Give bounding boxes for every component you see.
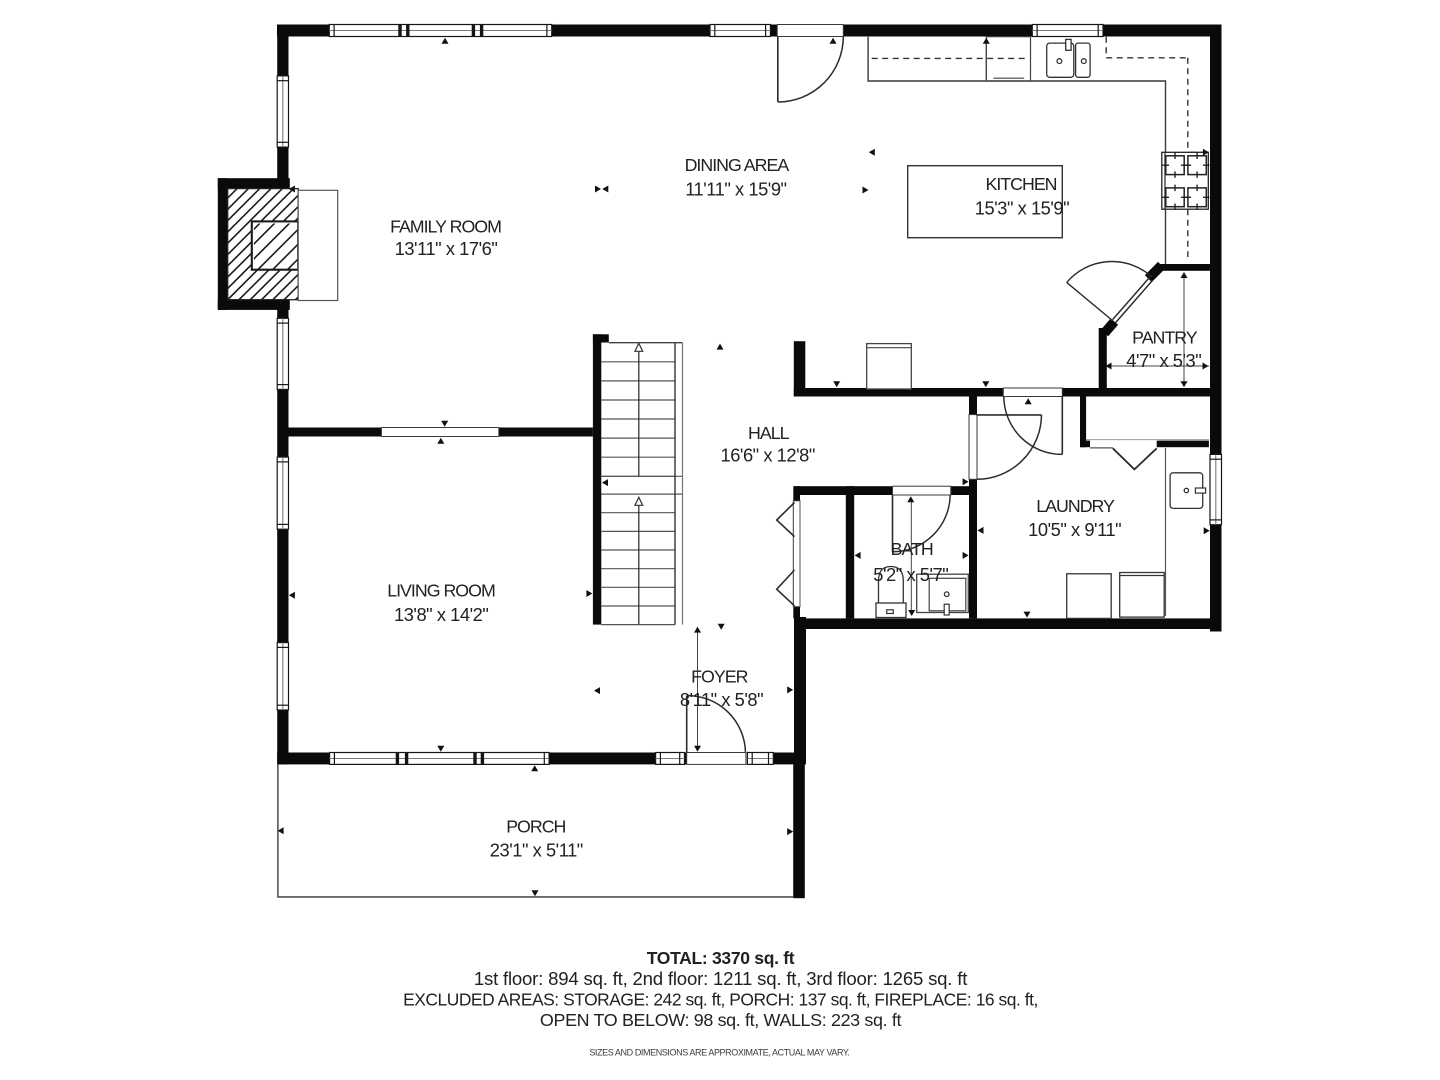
- svg-text:KITCHEN: KITCHEN: [985, 174, 1056, 194]
- svg-text:FOYER: FOYER: [691, 667, 748, 687]
- svg-text:13'8" x 14'2": 13'8" x 14'2": [394, 604, 488, 625]
- svg-text:BATH: BATH: [891, 539, 933, 559]
- svg-text:LIVING ROOM: LIVING ROOM: [387, 580, 495, 600]
- svg-text:HALL: HALL: [748, 423, 790, 443]
- svg-text:10'5" x 9'11": 10'5" x 9'11": [1028, 519, 1121, 540]
- svg-text:PANTRY: PANTRY: [1132, 328, 1198, 348]
- svg-text:15'3" x 15'9": 15'3" x 15'9": [975, 197, 1069, 218]
- svg-text:4'7" x 5'3": 4'7" x 5'3": [1126, 350, 1201, 371]
- svg-text:TOTAL: 3370 sq. ft: TOTAL: 3370 sq. ft: [647, 948, 795, 968]
- svg-text:1st floor: 894 sq. ft, 2nd flo: 1st floor: 894 sq. ft, 2nd floor: 1211 s…: [474, 968, 968, 989]
- svg-text:OPEN TO BELOW: 98 sq. ft, WALL: OPEN TO BELOW: 98 sq. ft, WALLS: 223 sq.…: [540, 1010, 902, 1030]
- svg-text:8'11" x 5'8": 8'11" x 5'8": [680, 689, 763, 710]
- svg-text:23'1" x 5'11": 23'1" x 5'11": [490, 840, 583, 861]
- svg-text:DINING AREA: DINING AREA: [685, 155, 790, 175]
- svg-text:13'11" x 17'6": 13'11" x 17'6": [395, 238, 498, 259]
- svg-text:16'6" x 12'8": 16'6" x 12'8": [720, 445, 814, 466]
- svg-text:FAMILY ROOM: FAMILY ROOM: [390, 217, 501, 237]
- svg-text:PORCH: PORCH: [506, 816, 565, 836]
- svg-text:5'2" x 5'7": 5'2" x 5'7": [873, 564, 948, 585]
- svg-text:EXCLUDED AREAS: STORAGE: 242 s: EXCLUDED AREAS: STORAGE: 242 sq. ft, POR…: [403, 990, 1038, 1010]
- svg-text:SIZES AND DIMENSIONS ARE APPRO: SIZES AND DIMENSIONS ARE APPROXIMATE, AC…: [589, 1048, 849, 1058]
- svg-text:LAUNDRY: LAUNDRY: [1036, 496, 1115, 516]
- svg-text:11'11" x 15'9": 11'11" x 15'9": [685, 178, 786, 199]
